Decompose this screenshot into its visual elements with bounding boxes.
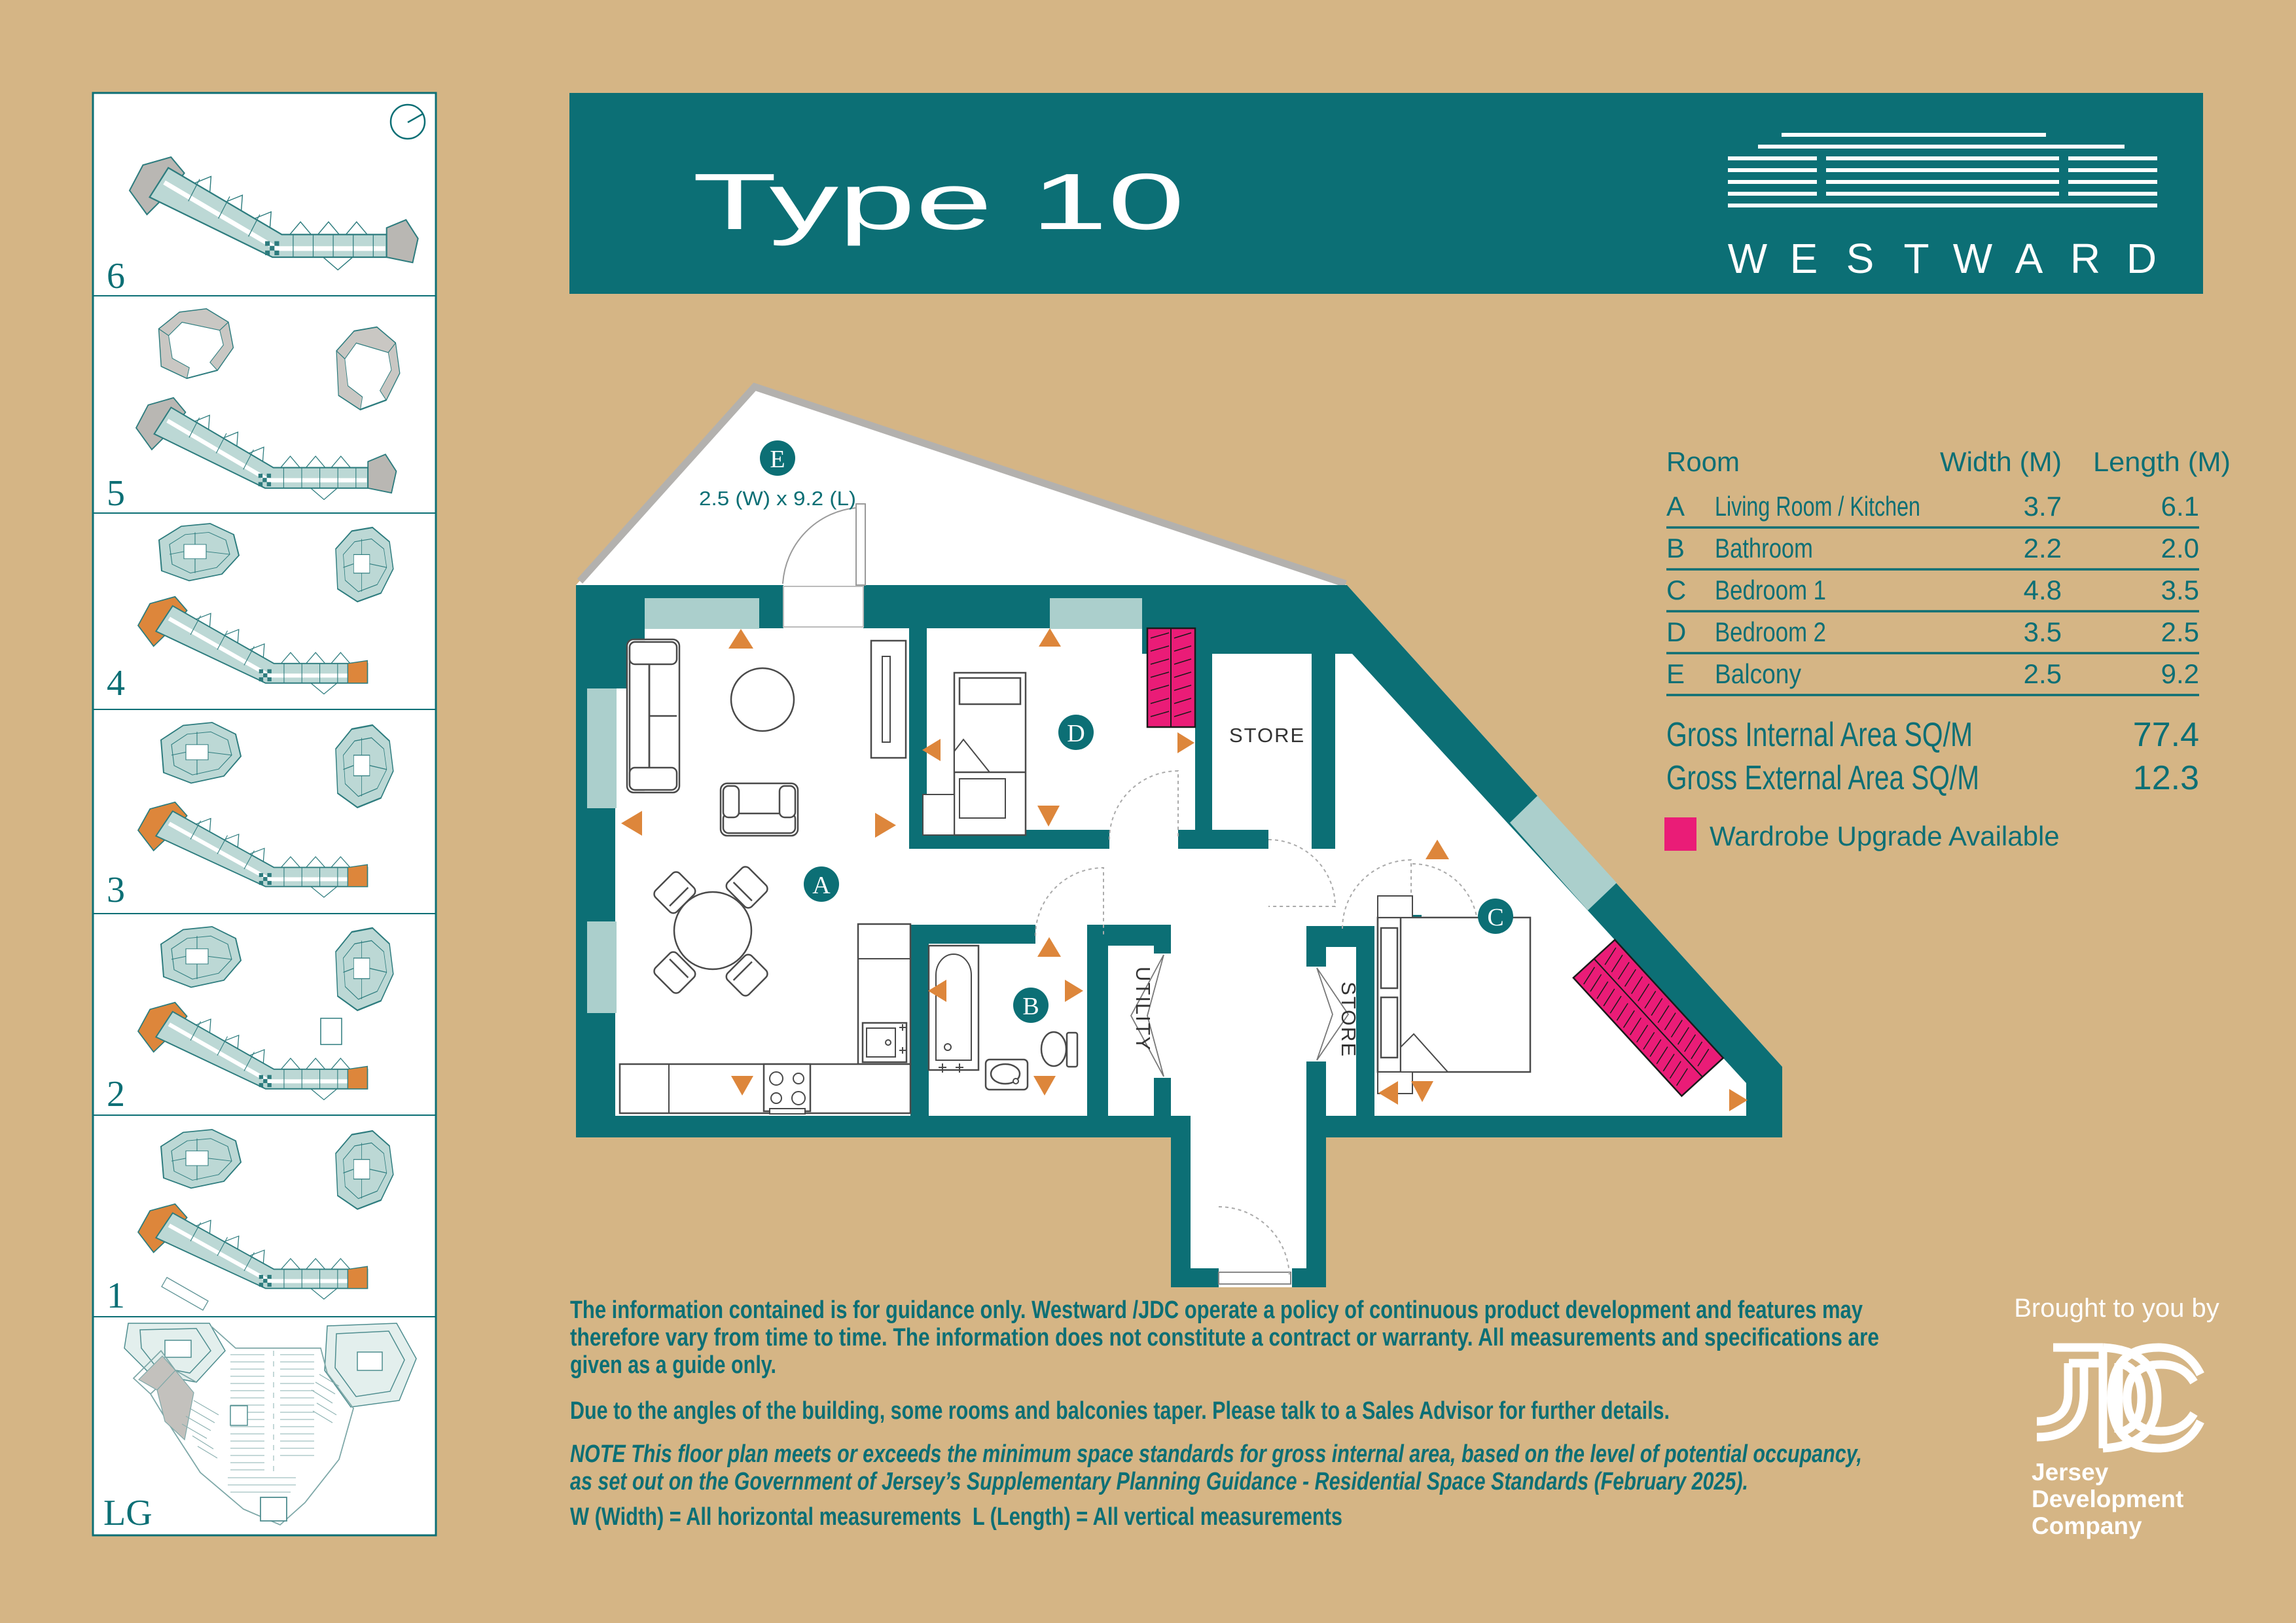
svg-text:A: A bbox=[812, 872, 831, 899]
svg-text:Jersey: Jersey bbox=[2032, 1459, 2109, 1486]
svg-text:Room: Room bbox=[1666, 446, 1740, 477]
svg-text:6: 6 bbox=[107, 256, 125, 296]
svg-text:Living Room / Kitchen: Living Room / Kitchen bbox=[1715, 491, 1920, 522]
svg-text:5: 5 bbox=[107, 473, 125, 514]
svg-text:NOTE This floor plan meets or: NOTE This floor plan meets or exceeds th… bbox=[570, 1440, 1862, 1468]
svg-text:1: 1 bbox=[107, 1275, 125, 1316]
svg-text:Balcony: Balcony bbox=[1715, 658, 1801, 689]
svg-text:A: A bbox=[1666, 491, 1685, 522]
svg-text:2: 2 bbox=[107, 1074, 125, 1115]
svg-text:B: B bbox=[1022, 993, 1039, 1020]
svg-text:S: S bbox=[1846, 235, 1874, 282]
svg-text:2.5: 2.5 bbox=[2161, 616, 2199, 647]
svg-text:W: W bbox=[1728, 235, 1768, 282]
svg-text:as set out on the Government o: as set out on the Government of Jersey’s… bbox=[570, 1468, 1748, 1495]
svg-text:LG: LG bbox=[103, 1493, 152, 1533]
svg-text:3.5: 3.5 bbox=[2161, 575, 2199, 605]
svg-text:Bathroom: Bathroom bbox=[1715, 533, 1813, 563]
svg-text:E: E bbox=[1666, 658, 1685, 689]
svg-text:W (Width) = All horizontal mea: W (Width) = All horizontal measurements … bbox=[570, 1503, 1342, 1531]
svg-text:Development: Development bbox=[2032, 1486, 2183, 1512]
svg-text:Brought to you by: Brought to you by bbox=[2014, 1294, 2219, 1323]
svg-text:2.5 (W) x 9.2 (L): 2.5 (W) x 9.2 (L) bbox=[699, 487, 856, 510]
svg-text:Length (M): Length (M) bbox=[2093, 446, 2231, 477]
svg-text:Type 10: Type 10 bbox=[692, 157, 1185, 246]
svg-text:A: A bbox=[2015, 235, 2043, 282]
svg-text:6.1: 6.1 bbox=[2161, 491, 2199, 522]
svg-text:2.0: 2.0 bbox=[2161, 533, 2199, 563]
svg-text:E: E bbox=[1790, 235, 1818, 282]
svg-text:Width (M): Width (M) bbox=[1940, 446, 2062, 477]
svg-text:E: E bbox=[770, 446, 785, 473]
svg-text:77.4: 77.4 bbox=[2133, 716, 2199, 754]
svg-text:UTILITY: UTILITY bbox=[1132, 967, 1155, 1051]
svg-text:4: 4 bbox=[107, 663, 125, 704]
svg-text:Due to the angles of the build: Due to the angles of the building, some … bbox=[570, 1397, 1670, 1425]
svg-text:Bedroom 2: Bedroom 2 bbox=[1715, 616, 1826, 647]
svg-text:D: D bbox=[1067, 720, 1085, 747]
svg-text:4.8: 4.8 bbox=[2024, 575, 2062, 605]
svg-text:3: 3 bbox=[107, 870, 125, 910]
svg-text:12.3: 12.3 bbox=[2133, 759, 2199, 797]
svg-text:D: D bbox=[1666, 616, 1686, 647]
svg-text:3.5: 3.5 bbox=[2024, 616, 2062, 647]
svg-text:C: C bbox=[1666, 575, 1686, 605]
svg-text:Gross External Area SQ/M: Gross External Area SQ/M bbox=[1666, 759, 1979, 797]
svg-text:given as a guide only.: given as a guide only. bbox=[570, 1351, 776, 1379]
svg-text:2.5: 2.5 bbox=[2024, 658, 2062, 689]
svg-text:STORE: STORE bbox=[1337, 982, 1360, 1058]
svg-text:W: W bbox=[1953, 235, 1993, 282]
svg-text:Bedroom 1: Bedroom 1 bbox=[1715, 575, 1826, 605]
svg-text:Company: Company bbox=[2032, 1512, 2142, 1539]
svg-text:R: R bbox=[2070, 235, 2100, 282]
svg-text:Gross Internal Area SQ/M: Gross Internal Area SQ/M bbox=[1666, 716, 1973, 754]
svg-text:Wardrobe Upgrade Available: Wardrobe Upgrade Available bbox=[1710, 821, 2060, 851]
svg-text:3.7: 3.7 bbox=[2024, 491, 2062, 522]
svg-text:D: D bbox=[2126, 235, 2157, 282]
svg-text:B: B bbox=[1666, 533, 1685, 563]
svg-text:The information contained is f: The information contained is for guidanc… bbox=[570, 1296, 1863, 1324]
svg-text:2.2: 2.2 bbox=[2024, 533, 2062, 563]
svg-text:T: T bbox=[1903, 235, 1929, 282]
svg-text:C: C bbox=[1487, 904, 1503, 931]
svg-text:9.2: 9.2 bbox=[2161, 658, 2199, 689]
svg-text:therefore vary from time to ti: therefore vary from time to time. The in… bbox=[570, 1324, 1879, 1351]
svg-text:STORE: STORE bbox=[1229, 724, 1305, 747]
